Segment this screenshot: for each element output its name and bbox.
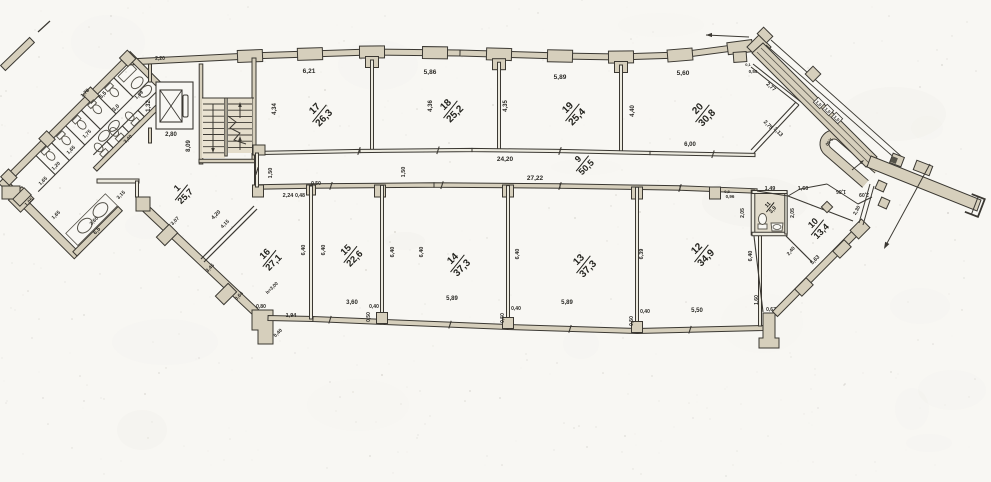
svg-text:1,50: 1,50 [268, 168, 274, 179]
svg-text:4,34: 4,34 [272, 103, 278, 115]
svg-text:6,40: 6,40 [390, 247, 396, 258]
svg-text:8,09: 8,09 [186, 140, 192, 152]
svg-text:4,36: 4,36 [428, 100, 434, 112]
svg-text:5,60: 5,60 [677, 70, 690, 77]
svg-text:6,40: 6,40 [748, 251, 754, 262]
svg-text:24,20: 24,20 [497, 156, 514, 163]
svg-text:3,60: 3,60 [346, 300, 358, 306]
svg-text:1,50: 1,50 [401, 167, 407, 178]
svg-text:0,8: 0,8 [724, 189, 730, 194]
svg-text:2,20: 2,20 [155, 56, 165, 62]
svg-text:6,00: 6,00 [684, 142, 696, 148]
svg-text:6,39: 6,39 [639, 249, 645, 260]
svg-text:6,40: 6,40 [419, 247, 425, 258]
svg-text:5,89: 5,89 [446, 296, 458, 302]
svg-text:1,49: 1,49 [765, 186, 776, 192]
svg-text:0,80: 0,80 [256, 304, 266, 310]
svg-text:6,40: 6,40 [301, 245, 307, 256]
svg-text:0,48: 0,48 [295, 193, 305, 199]
svg-text:6,40: 6,40 [321, 245, 327, 256]
svg-text:1,32: 1,32 [146, 100, 152, 112]
svg-text:0,50: 0,50 [366, 312, 372, 322]
svg-text:2,05: 2,05 [740, 208, 746, 218]
svg-text:2,05: 2,05 [790, 208, 796, 218]
svg-text:0,40: 0,40 [511, 306, 521, 312]
svg-text:5,86: 5,86 [424, 69, 437, 76]
svg-text:0,40: 0,40 [369, 304, 379, 310]
svg-text:0,96: 0,96 [726, 194, 735, 199]
svg-text:5,89: 5,89 [561, 300, 573, 306]
svg-text:4,40: 4,40 [630, 105, 636, 117]
svg-text:0,40: 0,40 [640, 309, 650, 315]
svg-text:4,35: 4,35 [503, 100, 509, 112]
svg-text:1,60: 1,60 [754, 295, 760, 305]
svg-text:6,21: 6,21 [303, 68, 316, 75]
svg-text:5,50: 5,50 [691, 308, 703, 314]
svg-text:27,22: 27,22 [527, 175, 544, 182]
svg-text:5,89: 5,89 [554, 74, 567, 81]
svg-text:0,55: 0,55 [749, 69, 758, 74]
svg-text:0,50: 0,50 [500, 313, 506, 323]
svg-text:2,24: 2,24 [283, 193, 295, 199]
svg-text:1,94: 1,94 [286, 313, 298, 319]
svg-text:2,80: 2,80 [165, 132, 177, 138]
svg-text:6,40: 6,40 [515, 249, 521, 260]
svg-text:0,50: 0,50 [629, 316, 635, 326]
svg-text:0,1: 0,1 [745, 62, 751, 67]
